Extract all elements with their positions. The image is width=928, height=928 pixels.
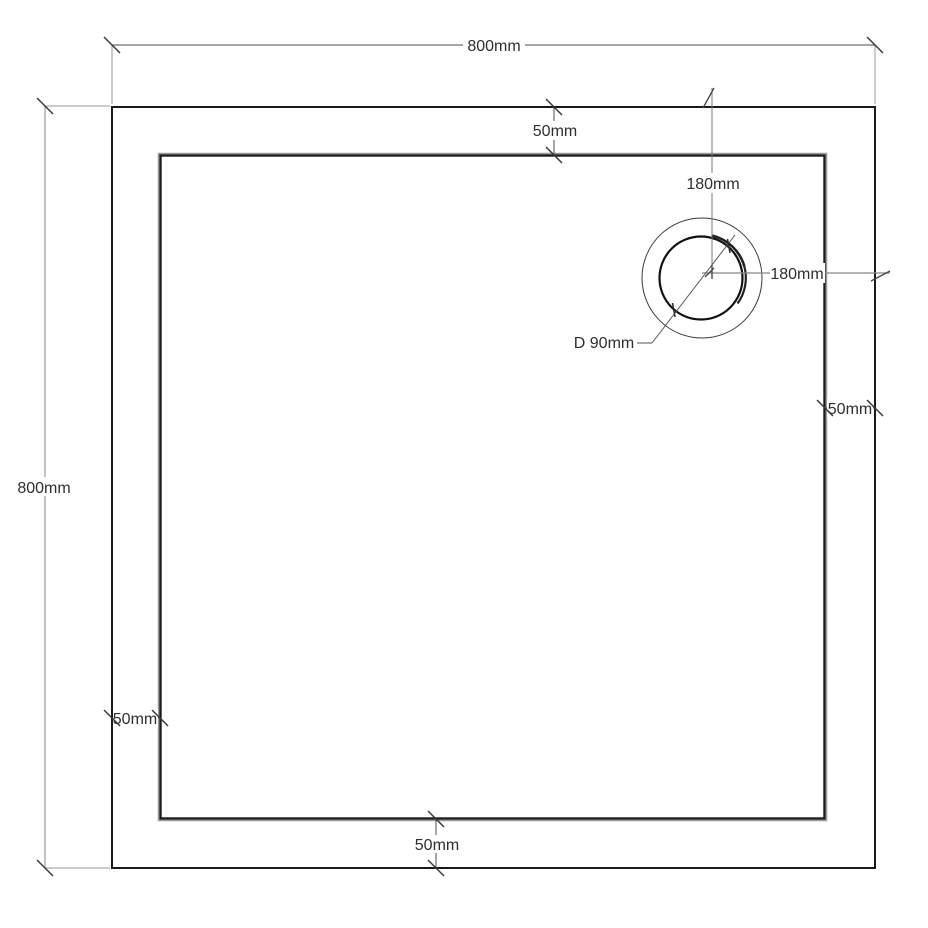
label-rim-left: 50mm [113, 711, 157, 728]
tray-outline [112, 107, 875, 868]
inner-square-shadow [159, 154, 827, 821]
label-overall-height: 800mm [17, 480, 70, 497]
label-overall-width: 800mm [467, 38, 520, 55]
label-backgrounds [14, 36, 873, 853]
dimension-lines [45, 45, 890, 868]
label-drain-from-top: 180mm [686, 176, 739, 193]
label-drain-diameter: D 90mm [574, 335, 634, 352]
label-rim-bottom: 50mm [415, 837, 459, 854]
label-drain-from-right: 180mm [770, 266, 823, 283]
tick-marks [37, 37, 883, 876]
inner-square [161, 156, 825, 819]
drain-hole-circle [660, 237, 743, 320]
extension-lines [45, 45, 875, 868]
dimension-labels: 800mm 800mm 50mm 50mm 50mm 50mm 180mm 18… [17, 38, 872, 854]
shower-tray-dimension-drawing: 800mm 800mm 50mm 50mm 50mm 50mm 180mm 18… [0, 0, 928, 928]
label-rim-right: 50mm [828, 401, 872, 418]
outer-square [112, 107, 875, 868]
dim-line-drain-diameter [652, 235, 735, 343]
drawing-canvas: 800mm 800mm 50mm 50mm 50mm 50mm 180mm 18… [0, 0, 928, 928]
label-rim-top: 50mm [533, 123, 577, 140]
